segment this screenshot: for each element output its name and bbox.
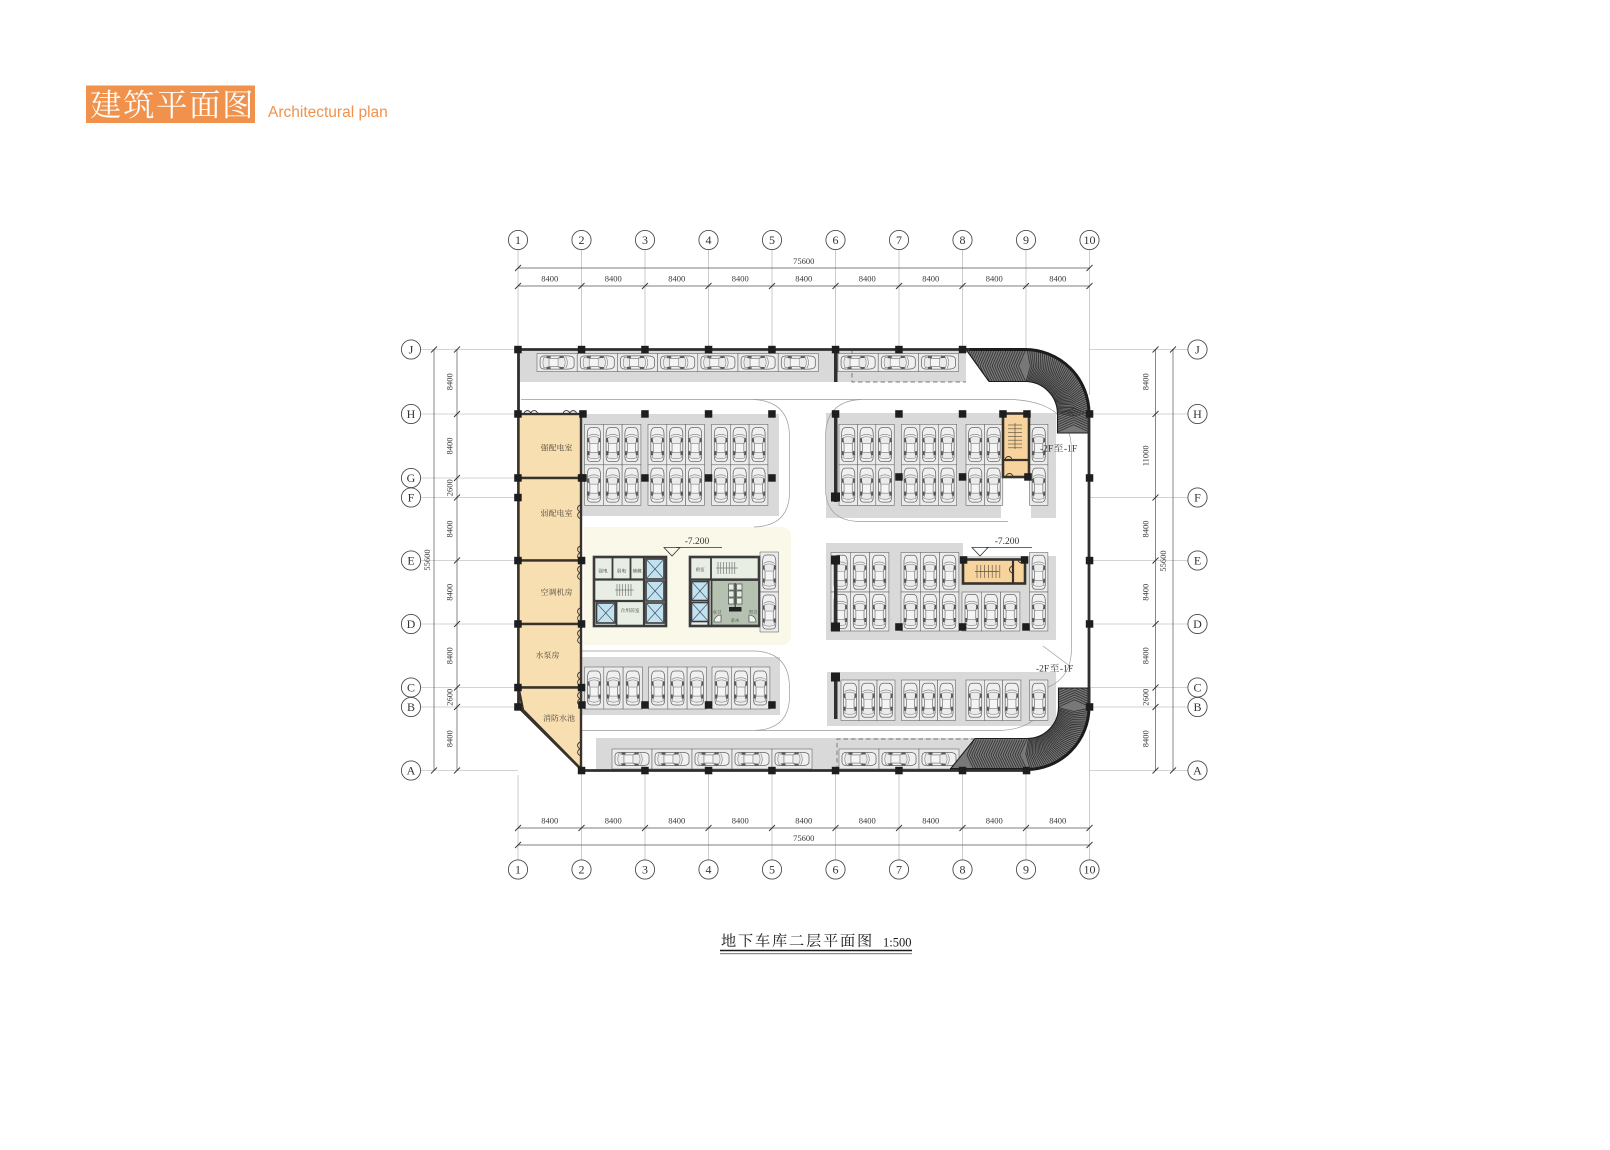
svg-text:-7.200: -7.200	[685, 537, 710, 547]
svg-text:A: A	[407, 764, 416, 778]
svg-text:F: F	[408, 491, 415, 505]
svg-text:-2F: -2F	[1036, 665, 1049, 675]
svg-text:8400: 8400	[668, 274, 685, 284]
svg-text:10: 10	[1084, 863, 1096, 877]
svg-text:-2F: -2F	[1040, 445, 1053, 455]
svg-text:8400: 8400	[1141, 373, 1151, 390]
svg-text:8400: 8400	[795, 816, 812, 826]
svg-text:8400: 8400	[795, 274, 812, 284]
svg-text:D: D	[1193, 617, 1202, 631]
svg-text:8400: 8400	[859, 816, 876, 826]
svg-text:75600: 75600	[793, 833, 814, 843]
svg-text:10: 10	[1084, 233, 1096, 247]
svg-text:8400: 8400	[605, 274, 622, 284]
svg-text:-7.200: -7.200	[995, 537, 1020, 547]
svg-text:8400: 8400	[986, 816, 1003, 826]
svg-text:55600: 55600	[1158, 550, 1168, 571]
svg-text:1:500: 1:500	[883, 936, 911, 950]
svg-text:2600: 2600	[1141, 689, 1151, 706]
svg-text:8400: 8400	[541, 816, 558, 826]
svg-text:J: J	[409, 343, 414, 357]
svg-text:5: 5	[769, 233, 775, 247]
svg-text:2600: 2600	[445, 479, 455, 496]
svg-text:6: 6	[833, 863, 839, 877]
svg-text:B: B	[407, 700, 415, 714]
svg-text:9: 9	[1023, 233, 1029, 247]
svg-text:4: 4	[706, 863, 712, 877]
svg-text:8400: 8400	[668, 816, 685, 826]
svg-text:8400: 8400	[445, 584, 455, 601]
svg-text:1: 1	[515, 863, 521, 877]
svg-text:4: 4	[706, 233, 712, 247]
svg-text:A: A	[1193, 764, 1202, 778]
svg-text:8: 8	[960, 233, 966, 247]
svg-text:6: 6	[833, 233, 839, 247]
svg-text:8400: 8400	[445, 647, 455, 664]
svg-text:2: 2	[579, 233, 585, 247]
svg-text:2: 2	[579, 863, 585, 877]
svg-text:8400: 8400	[445, 730, 455, 747]
svg-text:5: 5	[769, 863, 775, 877]
svg-text:3: 3	[642, 233, 648, 247]
svg-text:8400: 8400	[1141, 647, 1151, 664]
svg-text:8400: 8400	[605, 816, 622, 826]
svg-text:8400: 8400	[986, 274, 1003, 284]
svg-text:H: H	[407, 407, 416, 421]
svg-text:75600: 75600	[793, 256, 814, 266]
svg-text:8400: 8400	[922, 816, 939, 826]
svg-text:7: 7	[896, 863, 902, 877]
svg-text:55600: 55600	[422, 549, 432, 570]
svg-text:J: J	[1195, 343, 1200, 357]
svg-text:D: D	[407, 617, 416, 631]
svg-text:8400: 8400	[732, 274, 749, 284]
svg-text:7: 7	[896, 233, 902, 247]
svg-text:8400: 8400	[1141, 730, 1151, 747]
svg-text:8400: 8400	[445, 438, 455, 455]
svg-text:1: 1	[515, 233, 521, 247]
svg-text:8400: 8400	[732, 816, 749, 826]
svg-text:8400: 8400	[445, 373, 455, 390]
svg-text:E: E	[407, 554, 414, 568]
svg-text:H: H	[1193, 407, 1202, 421]
svg-text:C: C	[1193, 681, 1201, 695]
svg-text:E: E	[1194, 554, 1201, 568]
svg-text:Architectural plan: Architectural plan	[268, 104, 388, 121]
svg-text:8400: 8400	[1049, 274, 1066, 284]
svg-text:8400: 8400	[1049, 816, 1066, 826]
svg-text:G: G	[407, 471, 416, 485]
svg-text:8400: 8400	[445, 521, 455, 538]
svg-text:3: 3	[642, 863, 648, 877]
svg-text:2600: 2600	[445, 689, 455, 706]
svg-text:8400: 8400	[1141, 584, 1151, 601]
svg-text:8400: 8400	[922, 274, 939, 284]
svg-text:F: F	[1194, 491, 1201, 505]
svg-text:9: 9	[1023, 863, 1029, 877]
svg-text:8: 8	[960, 863, 966, 877]
svg-text:C: C	[407, 681, 415, 695]
svg-text:-1F: -1F	[1064, 445, 1077, 455]
svg-text:-1F: -1F	[1060, 665, 1073, 675]
svg-text:B: B	[1193, 700, 1201, 714]
svg-text:11000: 11000	[1141, 445, 1151, 466]
svg-text:8400: 8400	[541, 274, 558, 284]
svg-text:8400: 8400	[1141, 521, 1151, 538]
svg-text:8400: 8400	[859, 274, 876, 284]
